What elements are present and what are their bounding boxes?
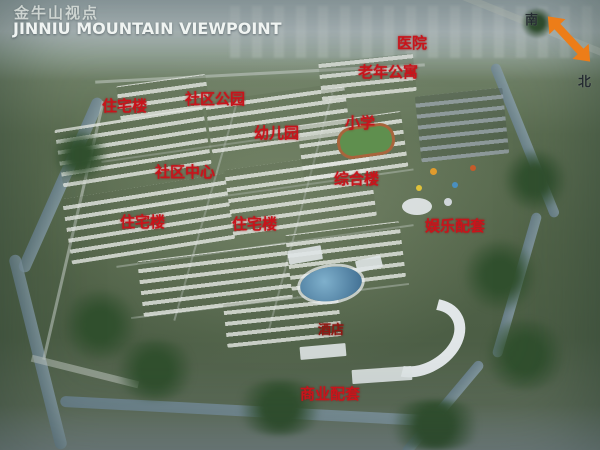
park-feature <box>452 182 458 188</box>
aerial-masterplan-rendering: 医院 老年公寓 住宅楼 社区公园 幼儿园 小学 社区中心 综合楼 住宅楼 住宅楼… <box>0 0 600 450</box>
tree-cluster <box>380 400 490 450</box>
label-complex-building: 综合楼 <box>334 168 379 189</box>
park-feature <box>470 165 476 171</box>
commercial-building <box>300 343 347 360</box>
label-hotel: 酒店 <box>318 319 344 338</box>
label-entertainment-facilities: 娱乐配套 <box>425 215 485 236</box>
label-hospital: 医院 <box>397 32 427 53</box>
label-primary-school: 小学 <box>345 112 375 133</box>
office-cluster-east <box>415 88 509 163</box>
tree-cluster <box>50 130 110 180</box>
viewpoint-title-english: JINNIU MOUNTAIN VIEWPOINT <box>13 19 282 38</box>
label-kindergarten: 幼儿园 <box>254 122 299 143</box>
park-feature <box>444 198 452 206</box>
tree-cluster <box>480 320 570 390</box>
commercial-building <box>352 366 413 384</box>
label-community-center: 社区中心 <box>155 161 215 182</box>
park-feature <box>430 168 437 175</box>
tree-cluster <box>460 240 540 310</box>
tree-cluster <box>110 340 200 400</box>
entertainment-dome <box>402 198 432 215</box>
label-senior-apartments: 老年公寓 <box>358 61 418 82</box>
tree-cluster <box>500 150 570 210</box>
compass-south-label: 南 <box>525 9 538 28</box>
label-commercial-facilities: 商业配套 <box>300 383 360 404</box>
label-residential-3: 住宅楼 <box>232 213 277 234</box>
label-community-park: 社区公园 <box>185 88 245 109</box>
label-residential-1: 住宅楼 <box>102 95 147 116</box>
compass-north-label: 北 <box>578 71 591 90</box>
park-feature <box>416 185 422 191</box>
label-residential-2: 住宅楼 <box>120 211 165 232</box>
